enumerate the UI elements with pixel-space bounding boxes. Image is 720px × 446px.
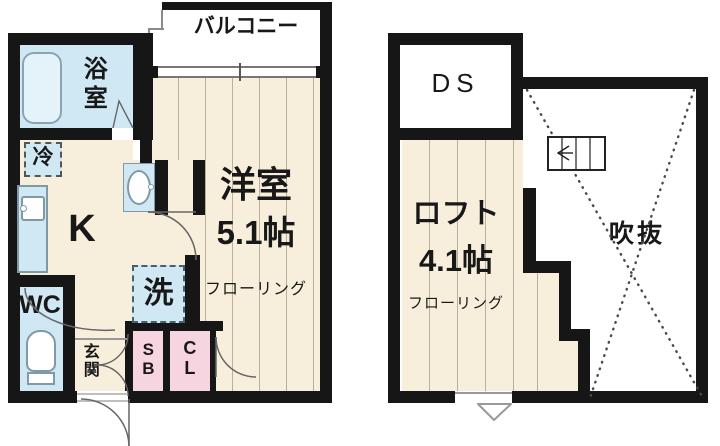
wall bbox=[128, 391, 332, 403]
wall bbox=[162, 2, 332, 10]
toilet-icon bbox=[26, 330, 56, 372]
wall bbox=[320, 2, 332, 66]
wall bbox=[210, 331, 216, 391]
window bbox=[158, 66, 316, 78]
wall bbox=[320, 66, 332, 403]
loft-floor bbox=[523, 273, 559, 391]
shoe-box-label: SB bbox=[139, 340, 157, 378]
vent-triangle-icon bbox=[478, 404, 511, 420]
wall bbox=[155, 160, 168, 215]
loft-size: 4.1帖 bbox=[398, 245, 514, 278]
washer-label: 洗 bbox=[132, 278, 185, 310]
faucet-icon bbox=[20, 205, 27, 212]
western-room-finish: フローリング bbox=[192, 282, 320, 299]
wall bbox=[8, 391, 77, 403]
wall bbox=[512, 391, 708, 403]
ladder-icon bbox=[548, 137, 605, 170]
loft-finish: フローリング bbox=[394, 296, 518, 312]
wall bbox=[388, 33, 400, 140]
wall bbox=[511, 77, 708, 89]
void-label: 吹抜 bbox=[598, 221, 676, 247]
bathroom-label: 浴室 bbox=[80, 56, 105, 114]
floorplan-canvas: バルコニー 浴室 冷 K WC 玄関 洗 SB CL 洋室 5.1帖 フローリン… bbox=[0, 0, 720, 446]
wall bbox=[523, 188, 536, 271]
entrance-door-arc bbox=[81, 399, 129, 446]
loft-name: ロフト bbox=[398, 199, 514, 229]
wall bbox=[133, 45, 153, 133]
wc-label: WC bbox=[16, 292, 64, 318]
wall bbox=[63, 287, 75, 391]
bathtub-icon bbox=[22, 52, 62, 124]
wall bbox=[140, 133, 152, 163]
kitchen-label: K bbox=[60, 210, 104, 250]
balcony-rail bbox=[161, 10, 163, 30]
duct-space-label: DS bbox=[400, 70, 511, 97]
wall bbox=[8, 128, 112, 140]
fridge-label: 冷 bbox=[24, 147, 62, 169]
wall bbox=[388, 33, 523, 45]
wall bbox=[559, 261, 571, 333]
entrance-label: 玄関 bbox=[80, 343, 97, 379]
western-room-name: 洋室 bbox=[200, 166, 312, 204]
wall bbox=[578, 329, 590, 403]
wall bbox=[125, 331, 133, 391]
western-room-size: 5.1帖 bbox=[196, 216, 316, 251]
wall bbox=[8, 33, 153, 45]
toilet-tank-icon bbox=[27, 372, 55, 385]
loft-floor bbox=[559, 341, 578, 391]
balcony-label: バルコニー bbox=[184, 16, 308, 38]
wall bbox=[388, 391, 455, 403]
entrance-step-line bbox=[75, 338, 128, 340]
wall bbox=[8, 275, 75, 287]
wall bbox=[696, 77, 708, 403]
closet-label: CL bbox=[180, 338, 199, 378]
washbasin-tap-icon bbox=[148, 184, 154, 190]
wall bbox=[163, 331, 170, 391]
wall bbox=[388, 128, 523, 140]
